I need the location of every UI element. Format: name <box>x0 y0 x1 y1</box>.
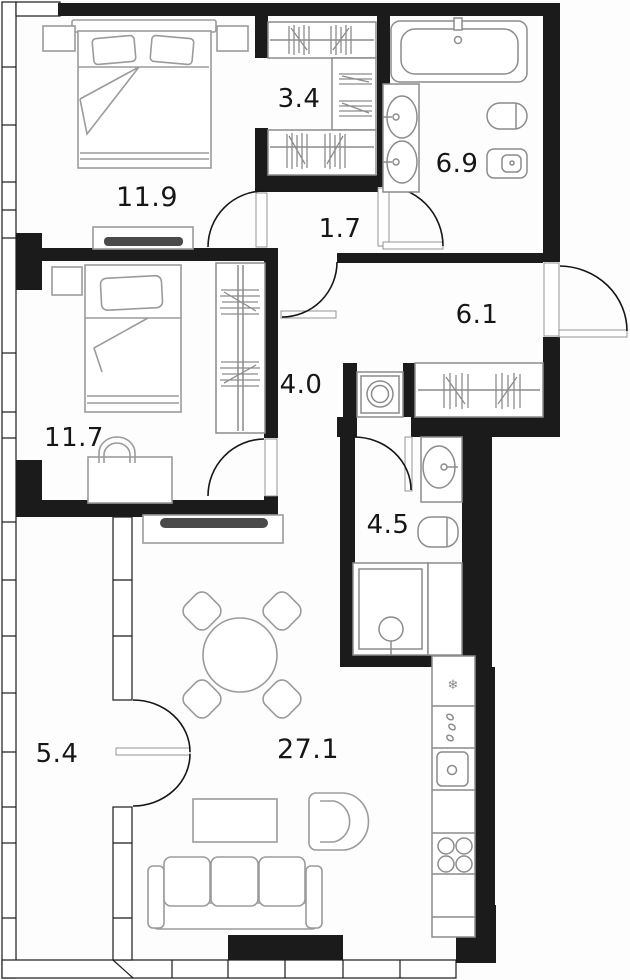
room-label-corridor: 4.0 <box>280 370 323 400</box>
balcony-french-doors <box>116 700 190 806</box>
sofa <box>148 857 322 929</box>
door-bathroom-main <box>378 186 443 249</box>
room-label-bedroom-2: 11.7 <box>44 423 104 453</box>
kitchen-sink <box>437 752 468 786</box>
door-bedroom-1 <box>208 191 267 247</box>
washing-machine <box>357 372 403 417</box>
room-label-bedroom-1: 11.9 <box>116 182 178 213</box>
double-bed <box>72 20 216 168</box>
window-band-bottom <box>2 960 456 978</box>
kitchen-units: ❄ <box>432 656 475 937</box>
balcony-glazed-partition <box>113 517 132 960</box>
floor-plan: ❄ <box>0 0 630 980</box>
nightstand-bedroom-2 <box>52 267 82 295</box>
room-label-bathroom-small: 4.5 <box>367 510 410 540</box>
shower <box>353 563 462 655</box>
washbasin-small <box>421 437 462 502</box>
coffee-table <box>193 799 277 842</box>
room-label-entry-hall: 6.1 <box>456 300 499 330</box>
single-bed <box>85 265 181 412</box>
wardrobe-bedroom-2 <box>216 263 265 433</box>
room-label-living-kitchen: 27.1 <box>277 734 339 765</box>
entrance-door <box>544 263 627 337</box>
toilet-main <box>487 103 527 129</box>
floor-plan-page: ❄ <box>0 0 630 980</box>
door-corridor <box>281 262 337 318</box>
desk <box>88 457 172 503</box>
double-washbasin <box>383 84 419 192</box>
coat-rack <box>415 363 543 417</box>
tv-console-living <box>143 515 283 543</box>
armchair <box>309 793 368 850</box>
door-bathroom-small <box>354 437 412 491</box>
tv-console-bedroom-1 <box>93 227 193 249</box>
round-dining-table <box>179 588 304 721</box>
bidet <box>487 149 527 178</box>
door-bedroom-2 <box>208 439 277 496</box>
room-label-vestibule: 1.7 <box>319 214 362 244</box>
bathtub <box>391 18 527 82</box>
toilet-small <box>418 517 458 547</box>
room-label-walk-in-closet: 3.4 <box>278 84 321 114</box>
room-label-balcony: 5.4 <box>36 739 79 769</box>
room-label-bathroom-main: 6.9 <box>436 149 479 179</box>
fridge-snowflake-icon: ❄ <box>448 678 459 693</box>
